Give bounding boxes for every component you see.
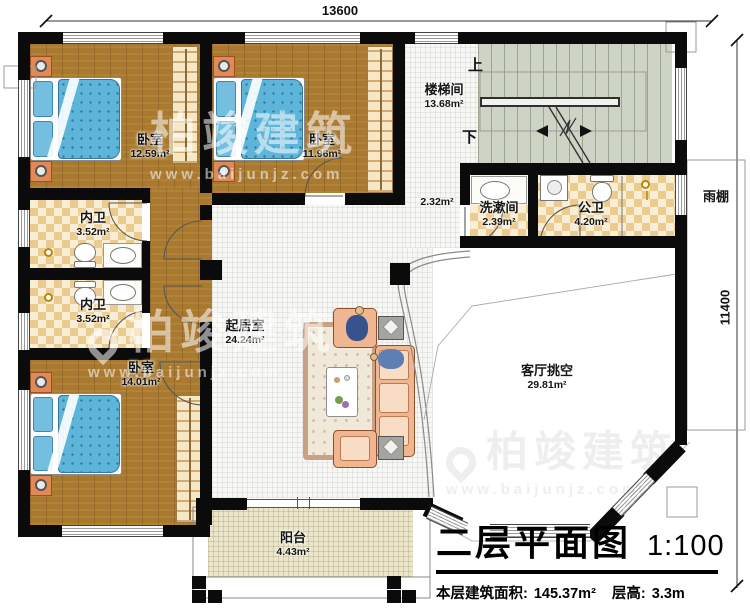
balcony-column — [192, 590, 206, 603]
room-area: 4.43m² — [233, 546, 353, 559]
wall-living-bottom-a — [208, 498, 247, 510]
shower-head-icon — [641, 180, 650, 189]
window-bedroom1-top — [63, 32, 163, 44]
wall-bed1-bed2 — [200, 44, 212, 193]
room-name: 雨棚 — [686, 189, 746, 205]
floor-height-label: 层高: — [612, 586, 646, 602]
title-underline — [436, 570, 718, 574]
label-void: 客厅挑空 29.81m² — [487, 363, 607, 391]
room-name: 内卫 — [33, 210, 153, 226]
label-balcony: 阳台 4.43m² — [233, 530, 353, 558]
label-ensuite1: 内卫 3.52m² — [33, 210, 153, 238]
wall-bed2-bottom-a — [212, 193, 305, 205]
room-name: 客厅挑空 — [487, 363, 607, 379]
room-name: 卧室 — [90, 132, 210, 148]
wall-living-bottom-b — [360, 498, 433, 510]
wall-bed1-bottom — [30, 188, 150, 200]
room-name: 起居室 — [185, 318, 305, 334]
dimension-height: 11400 — [718, 273, 733, 343]
room-name: 阳台 — [233, 530, 353, 546]
room-area: 29.81m² — [487, 379, 607, 392]
room-name: 卧室 — [81, 360, 201, 376]
window-bedroom3-left — [18, 390, 30, 470]
title-block: 二层平面图 1:100 — [436, 514, 725, 574]
balcony-column — [387, 590, 401, 603]
balcony-column — [208, 590, 222, 603]
plan-title: 二层平面图 — [436, 514, 631, 566]
dimension-width: 13600 — [300, 3, 380, 18]
window-stairhall-top — [415, 32, 458, 44]
window-bedroom1-left — [18, 80, 30, 157]
wall-bed2-right — [393, 44, 405, 193]
floor-plan: 卧室 12.59m² 卧室 11.96m² 楼梯间 13.68m² 上 下 2.… — [0, 0, 750, 615]
label-ensuite2: 内卫 3.52m² — [33, 297, 153, 325]
room-name: 楼梯间 — [384, 82, 504, 98]
plan-scale: 1:100 — [647, 530, 725, 563]
wall-ensuite-divider — [30, 268, 150, 280]
wall-vestibule-right-stub — [200, 260, 222, 280]
stair-up-label: 上 — [468, 54, 483, 75]
room-name: 卧室 — [262, 132, 382, 148]
ceiling-lamp-icon — [44, 248, 53, 257]
room-area: 24.24m² — [185, 334, 305, 347]
balcony-column — [387, 576, 401, 589]
wall-vestibule-right-a — [200, 205, 212, 220]
balcony-column — [192, 576, 206, 589]
title-footnote: 本层建筑面积:145.37m²层高:3.3m — [436, 582, 691, 603]
balcony-column — [402, 590, 416, 603]
label-living: 起居室 24.24m² — [185, 318, 305, 346]
room-name: 公卫 — [531, 200, 651, 216]
stair-down-label: 下 — [462, 126, 477, 147]
window-bedroom2-top — [245, 32, 360, 44]
label-canopy: 雨棚 — [686, 189, 746, 205]
window-ensuite1-left — [18, 210, 30, 247]
room-area: 3.52m² — [33, 313, 153, 326]
void-corner-column — [390, 263, 410, 285]
wall-stairs-bottom — [460, 163, 675, 175]
window-bedroom3-bottom — [62, 525, 163, 537]
window-stairs-right — [675, 68, 687, 140]
label-stairwell: 楼梯间 13.68m² — [384, 82, 504, 110]
floor-area-label: 本层建筑面积: — [436, 586, 528, 602]
floor-area-value: 145.37m² — [534, 586, 596, 602]
balcony-sliding-door — [247, 499, 360, 508]
room-area: 3.52m² — [33, 226, 153, 239]
room-area: 4.20m² — [531, 216, 651, 229]
wall-ensuite-right-b — [142, 241, 150, 268]
room-area: 12.59m² — [90, 148, 210, 161]
floor-height-value: 3.3m — [652, 586, 685, 602]
label-bedroom2: 卧室 11.96m² — [262, 132, 382, 160]
room-area: 11.96m² — [262, 148, 382, 161]
label-public-bath: 公卫 4.20m² — [531, 200, 651, 228]
wall-bath-bottom — [460, 236, 675, 248]
room-name: 内卫 — [33, 297, 153, 313]
room-area: 14.01m² — [81, 376, 201, 389]
wall-ensuite-right-a — [142, 192, 150, 203]
window-ensuite2-left — [18, 313, 30, 350]
wall-bed3-top — [30, 348, 150, 360]
room-area: 13.68m² — [384, 98, 504, 111]
wall-living-corner — [196, 498, 210, 537]
label-bedroom3: 卧室 14.01m² — [81, 360, 201, 388]
label-bedroom1: 卧室 12.59m² — [90, 132, 210, 160]
